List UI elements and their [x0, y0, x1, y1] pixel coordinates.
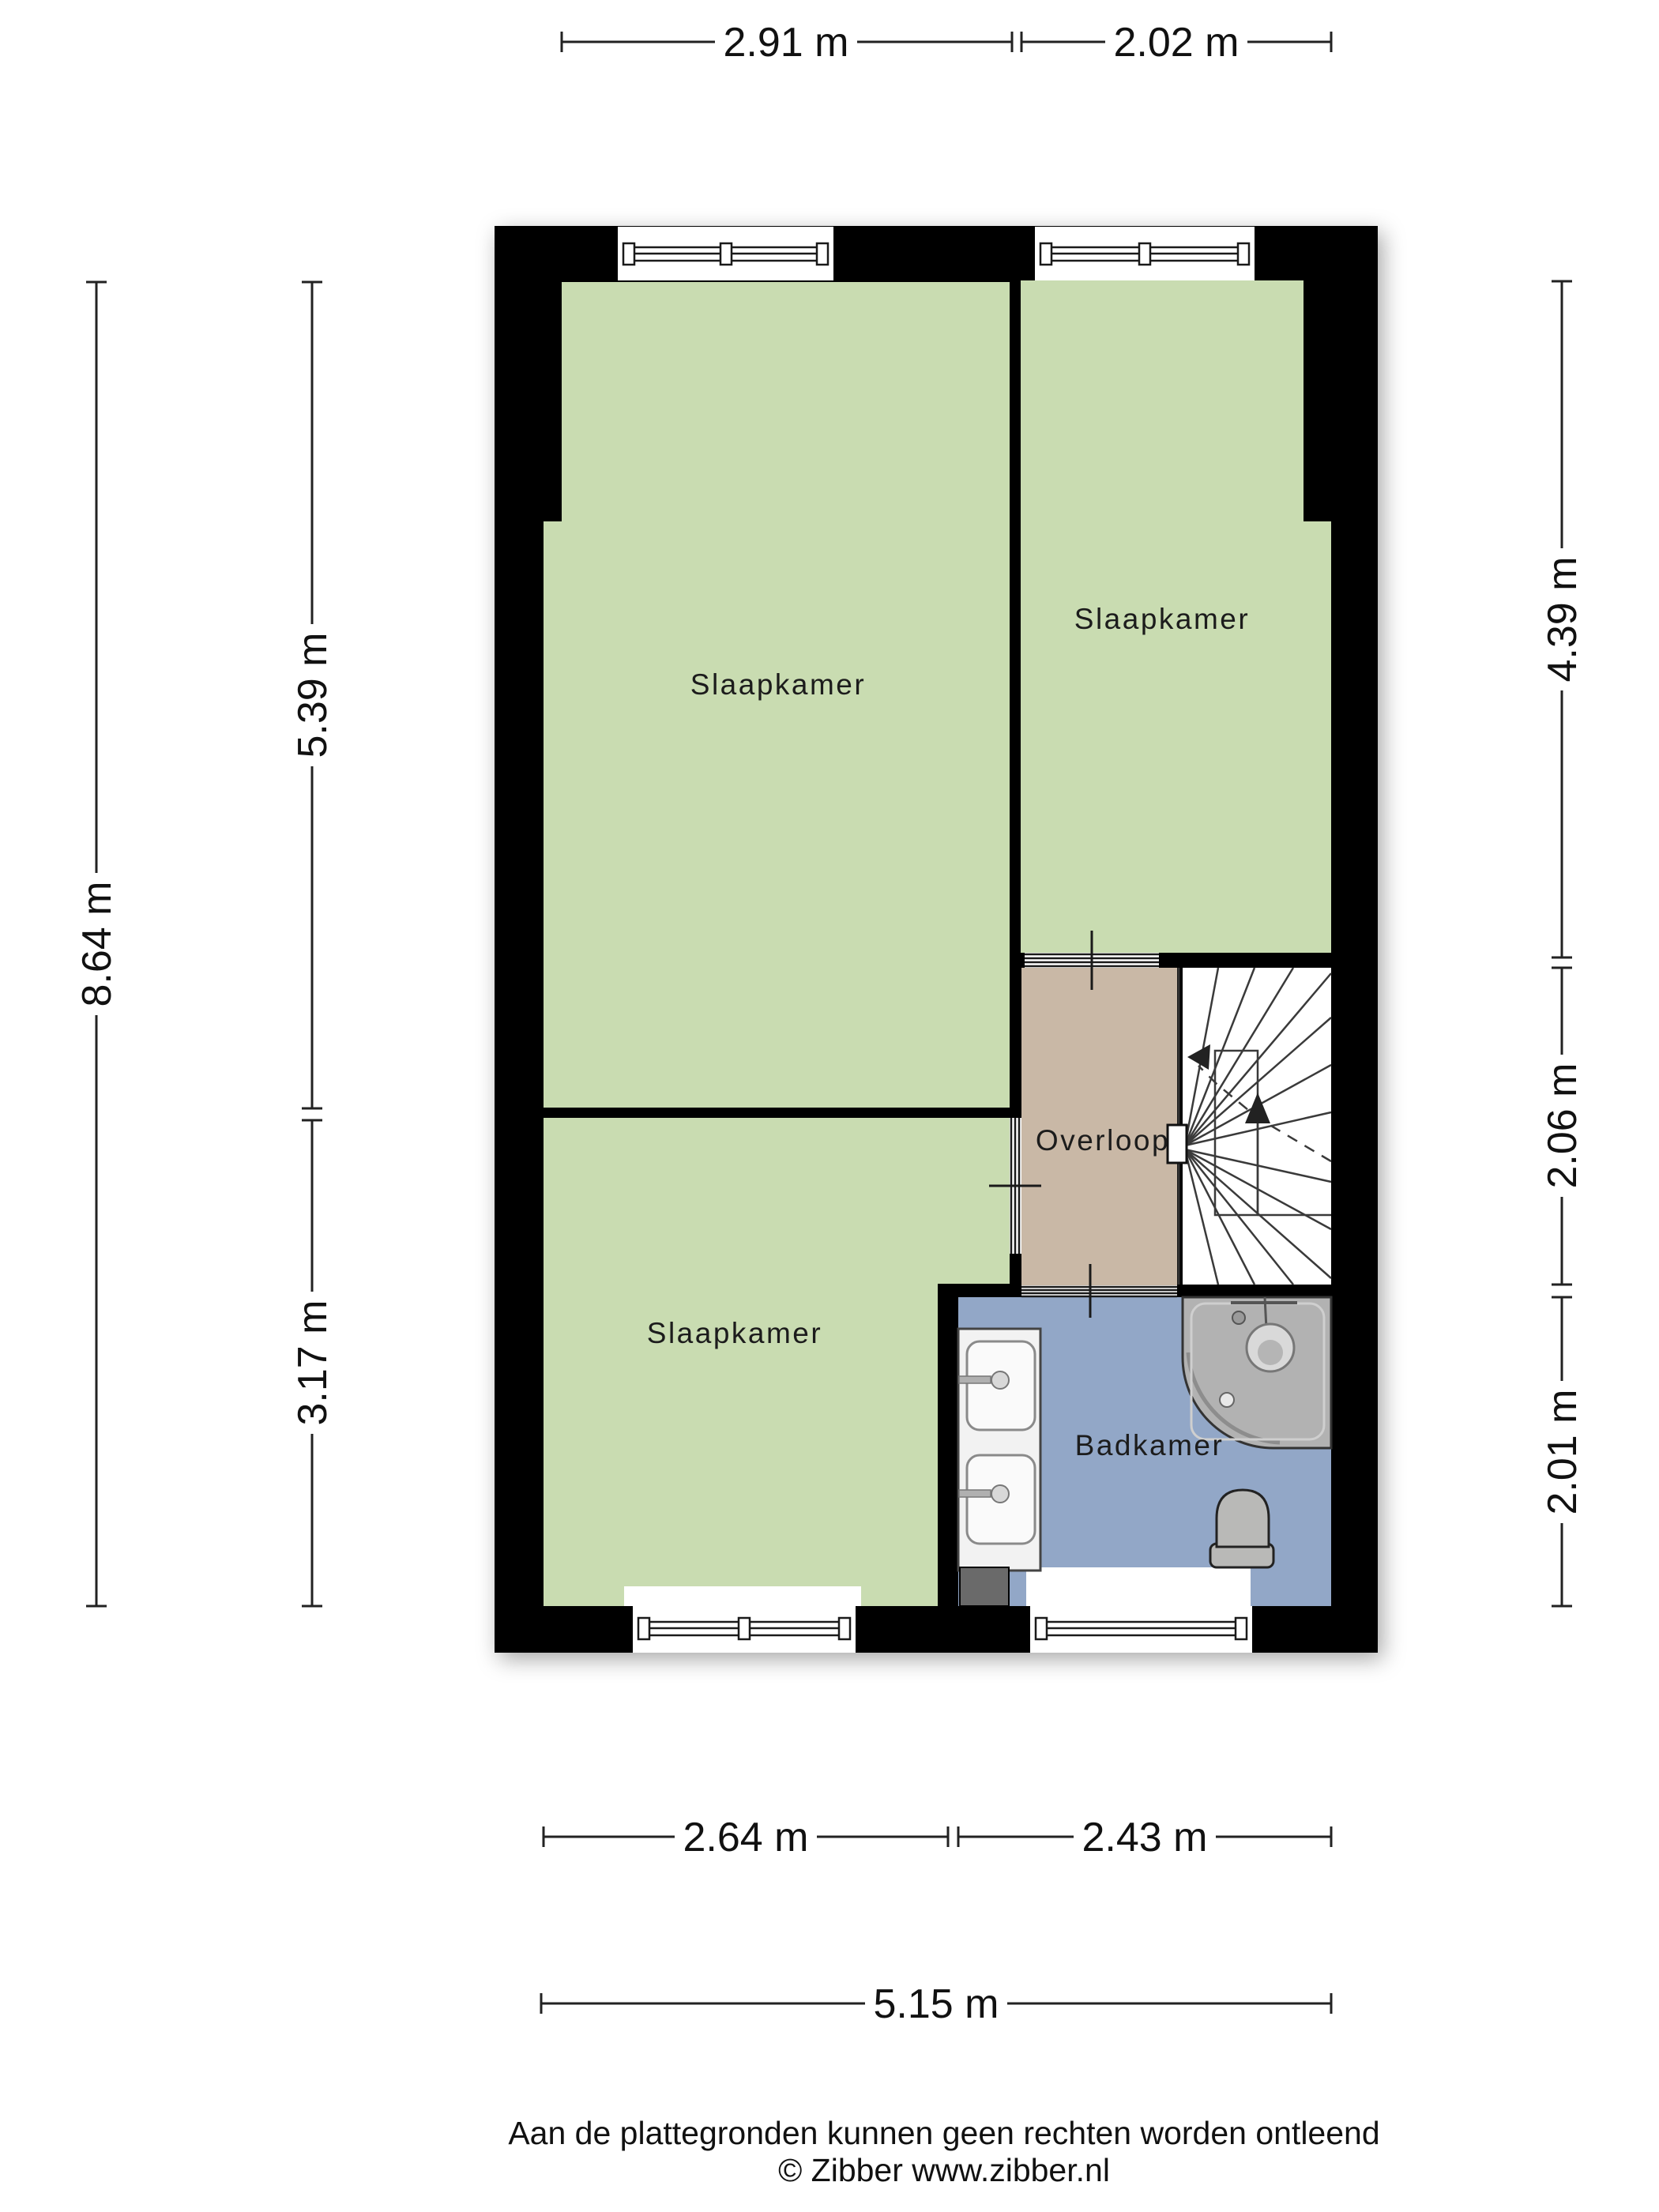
window-top-left: [618, 227, 833, 280]
dim-left-outer: 8.64 m: [72, 282, 121, 1606]
dim-label-right-3: 2.01 m: [1540, 1390, 1586, 1515]
dim-label-top-1: 2.91 m: [724, 20, 849, 66]
room-label-bedroom-large: Slaapkamer: [690, 668, 866, 701]
window-bottom-right: [1026, 1567, 1252, 1653]
stair-door-leaf: [1168, 1125, 1187, 1163]
floorplan-canvas: 2.91 m 2.02 m 8.64 m 5.39 m 3.17: [0, 0, 1659, 2212]
room-label-bathroom: Badkamer: [1075, 1429, 1224, 1461]
room-label-landing: Overloop: [1036, 1124, 1170, 1157]
duct-shaft: [960, 1567, 1009, 1606]
toilet-icon: [1210, 1490, 1273, 1567]
window-top-right: [1035, 227, 1255, 280]
floorplan: [495, 226, 1378, 1653]
dim-bottom: 2.64 m 2.43 m: [544, 1812, 1331, 1861]
dim-left-inner: 5.39 m 3.17 m: [288, 282, 337, 1606]
dim-label-top-2: 2.02 m: [1114, 20, 1240, 66]
floorplan-page: 2.91 m 2.02 m 8.64 m 5.39 m 3.17: [0, 0, 1659, 2212]
footer-disclaimer: Aan de plattegronden kunnen geen rechten…: [508, 2115, 1379, 2151]
dim-label-left-1: 5.39 m: [290, 633, 336, 758]
window-bottom-left: [624, 1586, 861, 1653]
dim-label-left-outer: 8.64 m: [74, 882, 120, 1007]
dim-bottom-total: 5.15 m: [541, 1979, 1331, 2028]
dim-label-right-2: 2.06 m: [1540, 1063, 1586, 1189]
double-sink-icon: [958, 1329, 1040, 1571]
dim-label-right-1: 4.39 m: [1540, 557, 1586, 683]
dim-right: 4.39 m 2.06 m 2.01 m: [1537, 281, 1586, 1606]
footer-credit: © Zibber www.zibber.nl: [778, 2152, 1110, 2188]
dim-label-left-2: 3.17 m: [290, 1300, 336, 1426]
dim-label-bottom-total: 5.15 m: [874, 1981, 999, 2027]
dim-label-bottom-1: 2.64 m: [683, 1815, 809, 1860]
room-label-bedroom-bottom: Slaapkamer: [647, 1317, 822, 1349]
room-label-bedroom-right: Slaapkamer: [1074, 603, 1250, 635]
dim-label-bottom-2: 2.43 m: [1082, 1815, 1208, 1860]
dim-top: 2.91 m 2.02 m: [562, 17, 1331, 66]
